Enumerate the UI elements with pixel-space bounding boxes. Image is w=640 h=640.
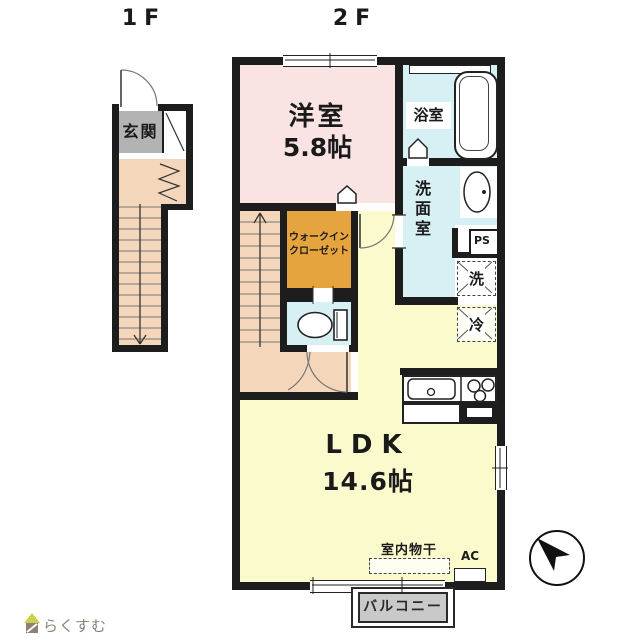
ldk-label: LDK: [280, 430, 456, 460]
western-room-size: 5.8帖: [250, 128, 385, 164]
floorplan: 1F 2F 玄関 浴室: [0, 0, 640, 640]
closet-diagonal: [166, 113, 184, 151]
kitchen-sink-icon: [408, 379, 455, 399]
kitchen-stove-icon: [461, 376, 494, 402]
fridge-label: 冷: [468, 314, 485, 335]
north-arrow-icon: [537, 538, 570, 571]
ldk-size: 14.6帖: [280, 462, 456, 498]
wic-label-line1: ウォークイン: [285, 231, 353, 244]
ac-label: AC: [455, 549, 485, 563]
bath-door-icon: [409, 139, 427, 158]
stairs-2f-up-arrow-icon: [254, 213, 266, 347]
wic-opening-ticks: [313, 286, 333, 304]
entrance-door-icon: [121, 70, 157, 107]
logo-text: らくすむ: [43, 615, 107, 636]
toilet-icon: [298, 310, 347, 340]
washbasin-icon: [464, 172, 490, 212]
wic-door-icon: [338, 186, 356, 203]
washroom-label: 洗面室: [409, 180, 433, 240]
stairs-1f-down-arrow-icon: [134, 204, 146, 344]
hall-doors-icon: [288, 352, 347, 392]
stair-break-icon: [159, 164, 179, 201]
wic-label-line2: クローゼット: [285, 245, 353, 258]
washer-label: 洗: [468, 268, 485, 289]
western-room-door-icon: [360, 214, 394, 248]
logo-house-icon: [24, 613, 40, 633]
indoor-drying-label: 室内物干: [367, 539, 451, 558]
